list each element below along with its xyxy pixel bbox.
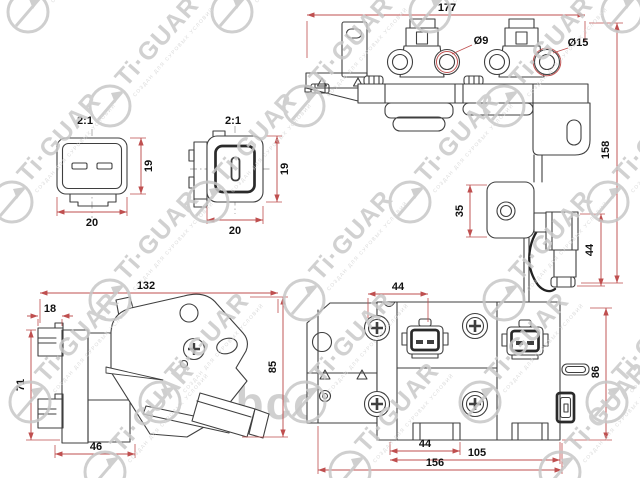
tiguar-logo-icon bbox=[602, 0, 640, 32]
ht-terminal-1 bbox=[388, 50, 413, 75]
svg-text:44: 44 bbox=[419, 438, 432, 450]
ht-terminal-2 bbox=[435, 50, 460, 75]
watermark-brand-text: Ti·GUAR bbox=[110, 0, 205, 92]
lock-tab bbox=[70, 194, 116, 206]
dimension-105: 105 bbox=[390, 442, 560, 464]
watermark-tagline-text: СОЗДАН ДЛЯ СУРОВЫХ УСЛОВИЙ bbox=[253, 0, 338, 4]
svg-text:85: 85 bbox=[267, 361, 279, 373]
svg-text:Ø9: Ø9 bbox=[474, 35, 489, 47]
watermark-brand-text: Ti·GUAR bbox=[110, 185, 205, 286]
svg-text:105: 105 bbox=[468, 447, 486, 459]
tiguar-logo-icon bbox=[0, 182, 32, 222]
watermark-brand-text: Ti·GUAR bbox=[304, 185, 399, 286]
tiguar-logo-icon bbox=[212, 0, 252, 32]
svg-text:19: 19 bbox=[143, 160, 155, 172]
svg-text:35: 35 bbox=[454, 205, 466, 217]
scale-label-b: 2:1 bbox=[225, 115, 241, 127]
svg-text:20: 20 bbox=[229, 225, 241, 237]
svg-text:20: 20 bbox=[86, 217, 98, 229]
dimension-18: 18 bbox=[27, 303, 73, 326]
tiguar-logo-icon bbox=[8, 0, 48, 32]
svg-text:86: 86 bbox=[590, 366, 602, 378]
svg-text:158: 158 bbox=[600, 141, 612, 159]
svg-text:44: 44 bbox=[392, 281, 405, 293]
tiguar-logo-slash bbox=[16, 0, 40, 26]
watermark-tagline-text: СОЗДАН ДЛЯ СУРОВЫХ УСЛОВИЙ bbox=[451, 0, 536, 4]
tiguar-logo-slash bbox=[610, 0, 634, 26]
watermark-unit: Ti·GUAR СОЗДАН ДЛЯ СУРОВЫХ УСЛОВИЙ bbox=[212, 0, 338, 32]
watermark-unit: Ti·GUAR СОЗДАН ДЛЯ СУРОВЫХ УСЛОВИЙ bbox=[8, 0, 134, 32]
latch-rail bbox=[194, 142, 207, 199]
phillips-screw bbox=[463, 314, 488, 339]
dimension-35: 35 bbox=[454, 185, 487, 237]
slot-hole bbox=[567, 120, 581, 145]
technical-drawing: Ti·GUAR СОЗДАН ДЛЯ СУРОВЫХ УСЛОВИЙ abco.… bbox=[0, 0, 640, 478]
watermark-tagline-text: СОЗДАН ДЛЯ СУРОВЫХ УСЛОВИЙ bbox=[49, 0, 134, 4]
watermark-brand-text: Ti·GUAR bbox=[608, 87, 640, 188]
svg-text:18: 18 bbox=[44, 303, 56, 315]
watermark-brand-text: Ti·GUAR bbox=[304, 0, 399, 92]
watermark-unit: Ti·GUAR СОЗДАН ДЛЯ СУРОВЫХ УСЛОВИЙ bbox=[602, 0, 640, 32]
svg-text:44: 44 bbox=[584, 243, 596, 256]
dimension-19: 19 bbox=[130, 138, 155, 194]
svg-text:156: 156 bbox=[426, 457, 444, 469]
svg-text:19: 19 bbox=[279, 163, 291, 175]
